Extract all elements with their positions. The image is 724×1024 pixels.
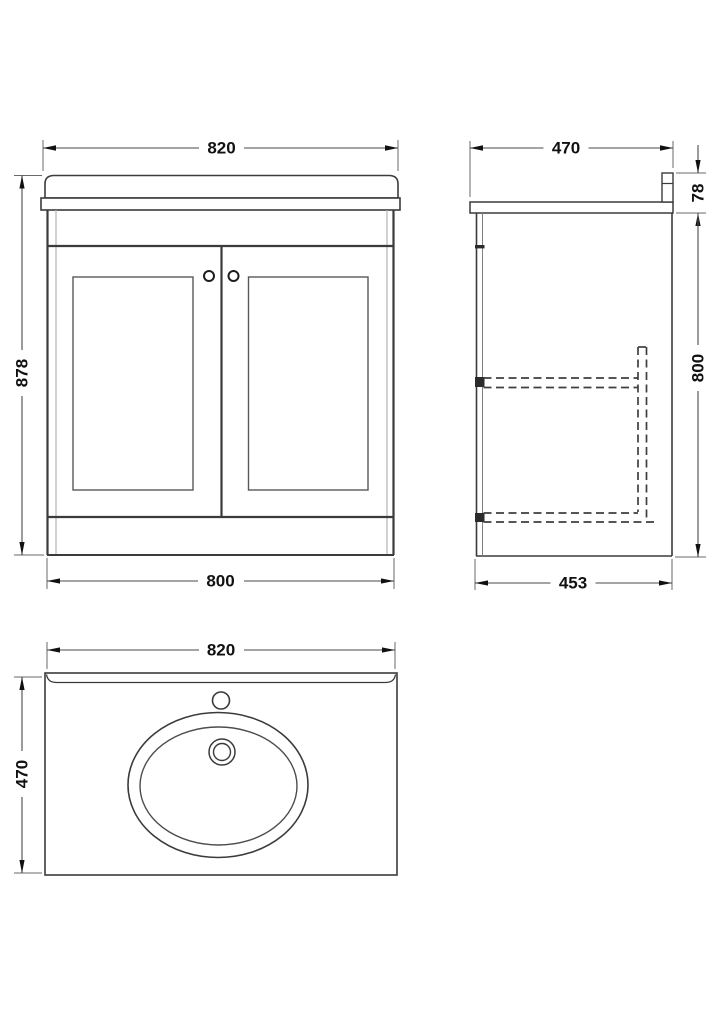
right-door-knob [229, 271, 239, 281]
left-door-knob [204, 271, 214, 281]
left-door-panel [73, 277, 193, 490]
tap-hole [213, 692, 230, 709]
dim-label-plan-470: 470 [13, 760, 32, 788]
right-door-panel [249, 277, 369, 490]
dim-side-overall-depth: 470 [470, 139, 673, 198]
dim-side-cabinet-depth: 453 [475, 559, 672, 593]
dim-label-front-800: 800 [206, 572, 234, 591]
plan-view: 820 470 [13, 641, 398, 876]
basin-upstand-side [662, 173, 673, 202]
dim-front-overall-height: 878 [13, 176, 45, 556]
dim-side-cabinet-height: 800 [675, 213, 708, 557]
dim-label-side-800: 800 [689, 354, 708, 382]
worktop-edge-band-front [41, 198, 400, 210]
dim-side-worktop-height: 78 [676, 145, 708, 226]
door-bottom-tick [475, 513, 485, 522]
shelf-front-tick [475, 377, 485, 387]
side-view: 470 78 800 [470, 139, 708, 593]
hidden-internal-lines [484, 347, 656, 522]
dimension-drawing-page: 820 878 800 [0, 0, 724, 1024]
dim-plan-overall-width: 820 [47, 641, 395, 670]
vanity-dimension-drawing: 820 878 800 [0, 0, 724, 1024]
dim-plan-overall-depth: 470 [13, 677, 43, 873]
dim-label-front-878: 878 [13, 359, 32, 387]
dim-label-plan-820: 820 [207, 641, 235, 660]
dim-label-side-470: 470 [552, 139, 580, 158]
worktop-side [470, 202, 673, 213]
front-view: 820 878 800 [13, 139, 401, 591]
dim-label-side-453: 453 [559, 574, 587, 593]
door-top-tick [475, 245, 485, 248]
basin-worktop-front [45, 176, 398, 199]
dim-front-overall-width: 820 [43, 139, 398, 172]
dim-label-side-78: 78 [689, 184, 708, 203]
dim-label-front-820: 820 [207, 139, 235, 158]
dim-front-cabinet-width: 800 [47, 558, 394, 591]
waste-drain-inner [214, 744, 231, 761]
